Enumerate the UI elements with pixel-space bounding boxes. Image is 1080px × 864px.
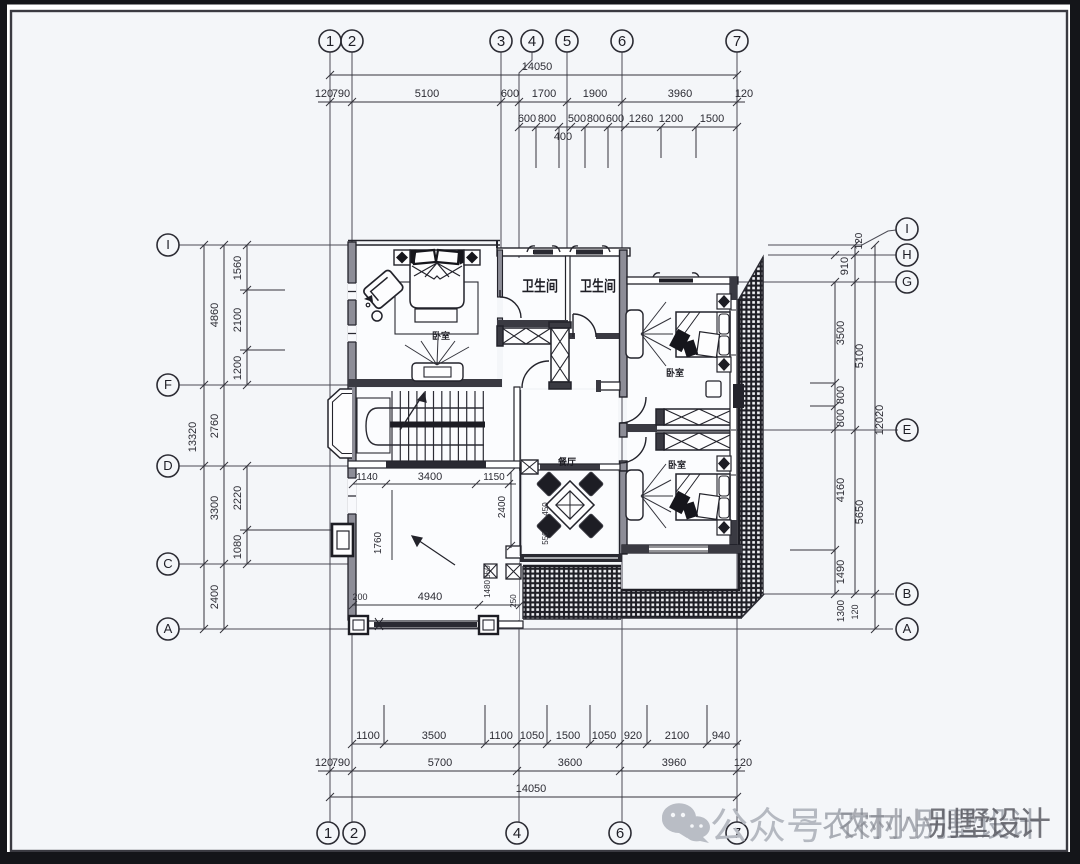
svg-text:600: 600 <box>606 113 624 125</box>
svg-text:600: 600 <box>518 113 536 125</box>
svg-text:3600: 3600 <box>558 757 582 769</box>
svg-text:卧室: 卧室 <box>432 330 450 341</box>
svg-text:800: 800 <box>835 386 847 404</box>
svg-text:120: 120 <box>850 604 860 619</box>
svg-text:1760: 1760 <box>373 531 384 554</box>
svg-text:1500: 1500 <box>700 113 724 125</box>
svg-text:G: G <box>902 274 912 289</box>
svg-text:1050: 1050 <box>592 730 616 742</box>
svg-text:1480: 1480 <box>483 580 492 598</box>
svg-text:14050: 14050 <box>522 61 553 73</box>
svg-text:120: 120 <box>734 757 752 769</box>
svg-text:550: 550 <box>483 565 492 579</box>
svg-text:1150: 1150 <box>483 472 505 483</box>
svg-text:C: C <box>163 556 172 571</box>
svg-text:1490: 1490 <box>835 560 847 584</box>
svg-text:3300: 3300 <box>209 496 221 520</box>
svg-text:250: 250 <box>509 594 518 608</box>
svg-text:120: 120 <box>854 232 865 249</box>
svg-text:5: 5 <box>563 33 571 50</box>
svg-text:3500: 3500 <box>835 321 847 345</box>
svg-text:120: 120 <box>315 757 333 769</box>
svg-text:I: I <box>166 237 170 252</box>
svg-text:E: E <box>903 422 912 437</box>
svg-text:120: 120 <box>315 88 333 100</box>
svg-text:卧室: 卧室 <box>666 367 684 378</box>
svg-text:1300: 1300 <box>836 599 847 622</box>
svg-text:400: 400 <box>554 131 572 143</box>
svg-text:800: 800 <box>587 113 605 125</box>
svg-text:5100: 5100 <box>854 344 866 368</box>
svg-text:920: 920 <box>624 730 642 742</box>
svg-text:13320: 13320 <box>187 422 199 453</box>
svg-text:6: 6 <box>616 825 624 842</box>
svg-text:910: 910 <box>839 257 851 275</box>
svg-text:卧室: 卧室 <box>668 459 686 470</box>
svg-text:2220: 2220 <box>232 486 244 510</box>
svg-text:1200: 1200 <box>659 113 683 125</box>
svg-text:800: 800 <box>835 409 847 427</box>
svg-text:4: 4 <box>513 825 521 842</box>
svg-text:I: I <box>905 221 909 236</box>
svg-text:450: 450 <box>541 502 550 516</box>
svg-text:940: 940 <box>712 730 730 742</box>
svg-text:2100: 2100 <box>665 730 689 742</box>
svg-text:200: 200 <box>352 592 367 602</box>
svg-text:1900: 1900 <box>583 88 607 100</box>
svg-text:600: 600 <box>501 88 519 100</box>
svg-text:5700: 5700 <box>428 757 452 769</box>
svg-text:别墅设计: 别墅设计 <box>928 805 1050 842</box>
svg-text:1080: 1080 <box>232 535 244 559</box>
svg-text:1700: 1700 <box>532 88 556 100</box>
svg-text:800: 800 <box>538 113 556 125</box>
svg-text:A: A <box>903 621 912 636</box>
svg-text:4160: 4160 <box>835 478 847 502</box>
svg-text:2: 2 <box>350 825 358 842</box>
svg-text:5100: 5100 <box>415 88 439 100</box>
svg-text:1050: 1050 <box>520 730 544 742</box>
svg-text:120: 120 <box>735 88 753 100</box>
svg-text:14050: 14050 <box>516 783 547 795</box>
svg-text:790: 790 <box>332 757 350 769</box>
svg-text:1100: 1100 <box>356 730 380 742</box>
svg-text:3500: 3500 <box>422 730 446 742</box>
svg-text:1100: 1100 <box>489 730 513 742</box>
svg-text:1500: 1500 <box>556 730 580 742</box>
svg-text:H: H <box>902 247 911 262</box>
svg-text:5650: 5650 <box>854 500 866 524</box>
svg-text:3: 3 <box>497 33 505 50</box>
svg-text:12020: 12020 <box>874 405 886 436</box>
svg-text:6: 6 <box>618 33 626 50</box>
svg-text:1: 1 <box>326 33 334 50</box>
svg-text:1560: 1560 <box>232 256 244 280</box>
svg-text:B: B <box>903 586 912 601</box>
svg-text:2100: 2100 <box>232 308 244 332</box>
svg-text:550: 550 <box>541 531 550 545</box>
svg-text:7: 7 <box>733 33 741 50</box>
svg-text:2400: 2400 <box>497 495 508 518</box>
svg-text:1: 1 <box>324 825 332 842</box>
svg-text:3960: 3960 <box>662 757 686 769</box>
svg-text:D: D <box>163 458 172 473</box>
svg-text:卫生间: 卫生间 <box>580 277 616 295</box>
svg-text:2760: 2760 <box>209 414 221 438</box>
svg-text:农村小: 农村小 <box>838 806 933 843</box>
svg-text:4860: 4860 <box>209 303 221 327</box>
svg-text:~: ~ <box>799 803 818 839</box>
svg-text:4940: 4940 <box>418 591 442 603</box>
svg-text:1200: 1200 <box>232 356 244 380</box>
svg-text:1140: 1140 <box>356 472 378 483</box>
svg-text:500: 500 <box>568 113 586 125</box>
svg-text:790: 790 <box>332 88 350 100</box>
svg-text:1260: 1260 <box>629 113 653 125</box>
svg-text:卫生间: 卫生间 <box>522 277 558 295</box>
svg-text:2400: 2400 <box>209 585 221 609</box>
svg-text:餐厅: 餐厅 <box>557 456 576 467</box>
svg-text:A: A <box>164 621 173 636</box>
svg-text:2: 2 <box>348 33 356 50</box>
svg-text:4: 4 <box>528 33 536 50</box>
svg-text:F: F <box>164 377 172 392</box>
svg-text:3960: 3960 <box>668 88 692 100</box>
svg-text:3400: 3400 <box>418 471 442 483</box>
